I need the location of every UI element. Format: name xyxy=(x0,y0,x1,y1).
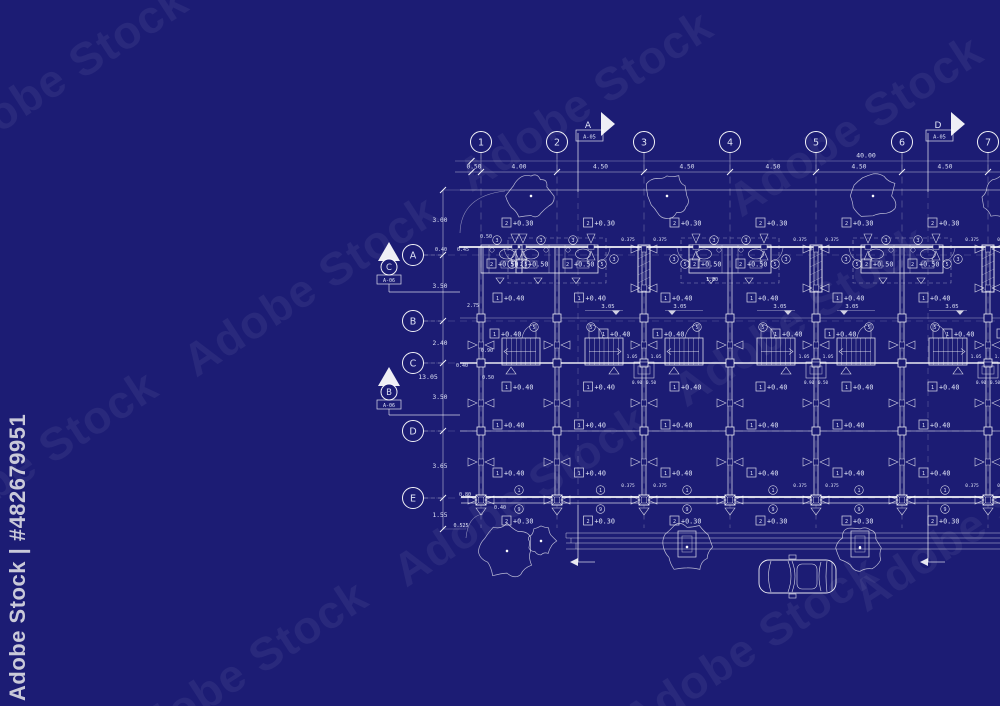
annotation-text: 1 xyxy=(922,471,925,477)
window-symbol xyxy=(975,458,984,466)
small-dim-text: 0.80 xyxy=(459,492,471,498)
elevation-value: +0.30 xyxy=(853,219,873,227)
blueprint-linework xyxy=(479,400,484,406)
blueprint-linework xyxy=(761,245,767,250)
blueprint-linework xyxy=(956,311,964,316)
dim-text: 3.50 xyxy=(433,394,448,401)
annotation-text: 1 xyxy=(577,471,580,477)
annotation-text: 1.05 xyxy=(971,354,982,360)
elevation-value: +0.40 xyxy=(930,469,950,477)
blueprint-linework xyxy=(728,342,733,348)
sink-fixture xyxy=(717,248,721,252)
elevation-value: +0.50 xyxy=(747,260,767,268)
annotation-text: 3 xyxy=(744,238,747,244)
annotation-text: 0.90 xyxy=(976,380,987,385)
blueprint-linework xyxy=(900,400,905,406)
window-symbol xyxy=(992,458,1000,466)
window-symbol xyxy=(561,458,570,466)
annotation-text: 9 xyxy=(599,507,602,513)
annotation-text: 1 xyxy=(586,385,589,391)
tree-center xyxy=(872,195,874,197)
window-symbol xyxy=(648,458,657,466)
window-symbol xyxy=(485,458,494,466)
window-symbol xyxy=(519,234,527,243)
column xyxy=(477,427,485,435)
column xyxy=(640,314,648,322)
window-symbol xyxy=(544,399,553,407)
section-letter: D xyxy=(935,121,942,131)
annotation-text: 3 xyxy=(612,257,615,263)
annotation-text: 9 xyxy=(517,507,520,513)
small-dim-text: 1.80 xyxy=(706,277,718,283)
window-symbol xyxy=(561,341,570,349)
annotation-text: 1 xyxy=(922,296,925,302)
section-letter: B xyxy=(386,388,392,398)
small-dim-text: 0.40 xyxy=(456,363,468,369)
car-mirror xyxy=(789,555,796,559)
column xyxy=(553,314,561,322)
annotation-text: 0.90 xyxy=(804,380,815,385)
annotation-text: 1 xyxy=(857,488,860,494)
blueprint-linework xyxy=(555,497,560,503)
annotation-text: 0.375 xyxy=(653,237,667,243)
grid-bubble-label: D xyxy=(409,427,416,438)
annotation-text: 1 xyxy=(496,471,499,477)
elevation-value: +0.30 xyxy=(595,517,615,525)
elevation-value: +0.40 xyxy=(664,330,684,338)
window-symbol xyxy=(544,341,553,349)
blueprint-linework xyxy=(555,400,560,406)
annotation-text: 5 xyxy=(600,262,603,268)
window-symbol xyxy=(468,458,477,466)
elevation-value: +0.40 xyxy=(954,330,974,338)
blueprint-linework xyxy=(814,342,819,348)
elevation-value: +0.40 xyxy=(836,330,856,338)
column xyxy=(812,314,820,322)
annotation-text: 2 xyxy=(673,519,676,525)
grid-bubble-label: 2 xyxy=(554,138,560,149)
annotation-text: 0.375 xyxy=(965,237,979,243)
annotation-text: 1 xyxy=(771,488,774,494)
annotation-text: 9 xyxy=(943,507,946,513)
annotation-text: 1 xyxy=(750,471,753,477)
elevation-value: +0.40 xyxy=(782,330,802,338)
annotation-text: 9 xyxy=(685,507,688,513)
window-symbol xyxy=(820,458,829,466)
annotation-text: 1 xyxy=(664,471,667,477)
window-symbol xyxy=(889,458,898,466)
blueprint-linework xyxy=(814,497,819,503)
annotation-text: 1 xyxy=(946,332,949,338)
window-symbol xyxy=(587,234,595,243)
car-mirror xyxy=(789,594,796,598)
elevation-value: +0.50 xyxy=(498,260,518,268)
blueprint-linework xyxy=(986,497,991,503)
blueprint-linework xyxy=(460,191,505,233)
elevation-value: +0.40 xyxy=(595,383,615,391)
annotation-text: 1 xyxy=(750,423,753,429)
overall-dim-text: 13.05 xyxy=(418,373,438,381)
annotation-text: 3.05 xyxy=(945,304,958,310)
tree xyxy=(478,523,531,577)
annotation-text: 3 xyxy=(844,257,847,263)
column xyxy=(477,359,485,367)
grid-bubble-label: C xyxy=(410,359,417,370)
column xyxy=(898,427,906,435)
elevation-value: +0.40 xyxy=(758,294,778,302)
grid-bubble-label: B xyxy=(410,317,417,328)
annotation-text: 0.375 xyxy=(793,483,807,489)
annotation-text: 3 xyxy=(712,238,715,244)
annotation-text: 2 xyxy=(759,519,762,525)
elevation-value: +0.40 xyxy=(586,469,606,477)
dim-text: 3.50 xyxy=(433,283,448,290)
blueprint-linework xyxy=(986,246,991,252)
annotation-text: 0.375 xyxy=(793,237,807,243)
dim-text: 4.50 xyxy=(680,164,695,171)
blueprint-linework xyxy=(784,311,792,316)
details xyxy=(468,234,1000,515)
annotations: 2+0.50532+0.50532+0.50532+0.50532+0.5053… xyxy=(409,138,1000,530)
annotation-text: 1.05 xyxy=(823,354,834,360)
tree-center xyxy=(859,547,861,549)
annotation-text: 5 xyxy=(589,325,592,331)
tree xyxy=(836,528,882,571)
window-symbol xyxy=(587,251,595,260)
blueprint-linework xyxy=(682,536,692,552)
window-symbol xyxy=(734,399,743,407)
window-symbol xyxy=(906,399,915,407)
elevation-value: +0.40 xyxy=(853,383,873,391)
symbol-triangle xyxy=(496,278,504,284)
symbol-triangle xyxy=(609,367,619,374)
elevation-value: +0.40 xyxy=(844,469,864,477)
annotation-text: 2 xyxy=(759,221,762,227)
annotation-text: 2 xyxy=(739,262,742,268)
annotation-text: 1 xyxy=(845,385,848,391)
annotation-text: 1 xyxy=(517,488,520,494)
window-symbol xyxy=(631,341,640,349)
elevation-value: +0.30 xyxy=(853,517,873,525)
tree-center xyxy=(540,540,542,542)
blueprint-linework xyxy=(588,245,594,250)
annotation-text: 1 xyxy=(750,296,753,302)
blueprint-linework xyxy=(479,459,484,465)
annotation-text: 2 xyxy=(566,262,569,268)
car-hood-line xyxy=(769,561,772,592)
window-symbol xyxy=(734,458,743,466)
sink-fixture xyxy=(566,248,570,252)
tree-center xyxy=(530,195,532,197)
window-symbol xyxy=(544,458,553,466)
elevation-value: +0.50 xyxy=(574,260,594,268)
annotation-text: 1 xyxy=(943,488,946,494)
elevation-value: +0.50 xyxy=(919,260,939,268)
elevation-value: +0.40 xyxy=(504,421,524,429)
blueprint-linework xyxy=(668,311,676,316)
annotation-text: 5 xyxy=(524,262,527,268)
annotation-text: 3 xyxy=(884,238,887,244)
annotation-text: 5 xyxy=(855,262,858,268)
window-symbol xyxy=(906,341,915,349)
annotation-text: 1 xyxy=(685,488,688,494)
window-symbol xyxy=(932,234,940,243)
section-flag xyxy=(378,367,400,386)
elevation-value: +0.30 xyxy=(681,219,701,227)
window-symbol xyxy=(992,399,1000,407)
car-windshield xyxy=(792,561,795,592)
window-symbol xyxy=(864,251,872,260)
blueprint-linework xyxy=(900,459,905,465)
annotation-text: 9 xyxy=(771,507,774,513)
elevation-value: +0.40 xyxy=(501,330,521,338)
annotation-text: 2 xyxy=(505,221,508,227)
annotation-text: 1 xyxy=(836,423,839,429)
annotation-text: 1 xyxy=(836,296,839,302)
annotation-text: 1 xyxy=(836,471,839,477)
annotation-text: 1 xyxy=(759,385,762,391)
annotation-text: 0.375 xyxy=(825,237,839,243)
column xyxy=(640,427,648,435)
blueprint-linework xyxy=(728,400,733,406)
small-dim-text: 0.40 xyxy=(494,505,506,511)
annotation-text: 0.375 xyxy=(621,483,635,489)
annotation-text: 1 xyxy=(664,423,667,429)
annotation-text: 1.05 xyxy=(799,354,810,360)
dim-text: 4.50 xyxy=(593,164,608,171)
column xyxy=(553,359,561,367)
small-dim-text: 0.40 xyxy=(435,247,447,253)
elevation-value: +0.40 xyxy=(758,421,778,429)
elevation-value: +0.40 xyxy=(844,294,864,302)
annotation-text: 5 xyxy=(945,262,948,268)
dim-text: 4.50 xyxy=(766,164,781,171)
elevation-value: +0.30 xyxy=(939,517,959,525)
annotation-text: 3.05 xyxy=(601,304,614,310)
window-symbol xyxy=(820,341,829,349)
section-sheet: A-05 xyxy=(933,135,946,141)
tree xyxy=(528,526,556,555)
car-body xyxy=(759,560,836,593)
elevation-value: +0.40 xyxy=(681,383,701,391)
elevation-value: +0.40 xyxy=(672,421,692,429)
annotation-text: 2 xyxy=(520,262,523,268)
blueprint-linework xyxy=(466,514,483,538)
car-roof xyxy=(797,564,817,589)
annotation-text: 3 xyxy=(784,257,787,263)
annotation-text: 9 xyxy=(857,507,860,513)
window-symbol xyxy=(906,458,915,466)
window-symbol xyxy=(631,458,640,466)
tree-center xyxy=(666,195,668,197)
annotation-text: 3.05 xyxy=(773,304,786,310)
elevation-value: +0.30 xyxy=(767,219,787,227)
blueprint-linework xyxy=(900,497,905,503)
section-letter: C xyxy=(386,263,392,273)
elevation-value: +0.40 xyxy=(610,330,630,338)
annotation-text: 2 xyxy=(911,262,914,268)
blueprint-linework xyxy=(986,342,991,348)
blueprint-linework xyxy=(814,459,819,465)
annotation-text: 1.05 xyxy=(627,354,638,360)
dim-text: 4.50 xyxy=(938,164,953,171)
elevation-value: +0.40 xyxy=(513,383,533,391)
annotation-text: 5 xyxy=(532,325,535,331)
blueprint-linework xyxy=(642,285,647,291)
annotation-text: 2 xyxy=(673,221,676,227)
dim-text: 2.40 xyxy=(433,340,448,347)
window-symbol xyxy=(717,399,726,407)
blueprint-linework xyxy=(900,342,905,348)
blueprint-linework xyxy=(986,400,991,406)
section-flag xyxy=(378,242,400,261)
blueprint-linework xyxy=(986,285,991,291)
blueprint-linework xyxy=(933,245,939,250)
dim-text: 3.65 xyxy=(433,463,448,470)
grid-bubble-label: E xyxy=(410,494,416,505)
annotation-text: 0.375 xyxy=(825,483,839,489)
car-rear-window xyxy=(819,562,821,591)
window-symbol xyxy=(992,341,1000,349)
annotation-text: 1.05 xyxy=(651,354,662,360)
blueprint-linework xyxy=(693,245,699,250)
annotation-text: 3 xyxy=(495,238,498,244)
blueprint-linework xyxy=(814,246,819,252)
sink-fixture xyxy=(911,248,915,252)
window-symbol xyxy=(803,458,812,466)
window-symbol xyxy=(511,251,519,260)
tree-center xyxy=(506,550,508,552)
dim-text: 1.55 xyxy=(433,512,448,519)
annotation-text: 0.375 xyxy=(965,483,979,489)
window-symbol xyxy=(975,341,984,349)
column xyxy=(726,359,734,367)
annotation-text: 5 xyxy=(761,325,764,331)
window-symbol xyxy=(692,234,700,243)
column xyxy=(984,427,992,435)
annotation-text: 1 xyxy=(505,385,508,391)
annotation-text: 2 xyxy=(693,262,696,268)
blueprint-linework xyxy=(986,459,991,465)
blueprint-linework xyxy=(642,497,647,503)
tree xyxy=(982,175,1000,217)
elevation-value: +0.40 xyxy=(586,294,606,302)
dim-text: 4.50 xyxy=(852,164,867,171)
elevation-value: +0.40 xyxy=(844,421,864,429)
annotation-text: 0.375 xyxy=(653,483,667,489)
section-letter: A xyxy=(585,121,592,131)
overall-dim-text: 40.00 xyxy=(856,152,876,160)
stock-blueprint-image: Adobe StockAdobe StockAdobe StockAdobe S… xyxy=(0,0,1000,706)
small-dim-text: 0.525 xyxy=(453,523,468,529)
symbol-triangle xyxy=(841,367,851,374)
blueprint-linework xyxy=(840,311,848,316)
window-symbol xyxy=(820,399,829,407)
blueprint-linework xyxy=(512,245,518,250)
elevation-value: +0.40 xyxy=(672,469,692,477)
car-trunk-line xyxy=(826,561,827,592)
annotation-text: 3 xyxy=(916,238,919,244)
annotation-text: 1 xyxy=(774,332,777,338)
window-symbol xyxy=(648,399,657,407)
window-symbol xyxy=(864,234,872,243)
annotation-text: 2 xyxy=(586,221,589,227)
window-symbol xyxy=(803,341,812,349)
grid-bubble-label: 7 xyxy=(985,138,991,149)
window-symbol xyxy=(631,399,640,407)
small-dim-text: 2.75 xyxy=(467,303,479,309)
elevation-value: +0.40 xyxy=(504,469,524,477)
annotation-text: 1 xyxy=(664,296,667,302)
elevation-value: +0.40 xyxy=(758,469,778,477)
elevation-value: +0.50 xyxy=(873,260,893,268)
annotation-text: 3 xyxy=(571,238,574,244)
annotation-text: 5 xyxy=(773,262,776,268)
annotation-text: 1.05 xyxy=(995,354,1000,360)
dim-text: 3.00 xyxy=(433,217,448,224)
elevation-value: +0.30 xyxy=(513,219,533,227)
annotation-text: 3 xyxy=(539,238,542,244)
elevation-value: +0.40 xyxy=(939,383,959,391)
blueprint-linework xyxy=(555,342,560,348)
blueprint-linework xyxy=(728,497,733,503)
annotation-text: 5 xyxy=(933,325,936,331)
annotation-text: 0.50 xyxy=(818,380,829,385)
symbol-triangle xyxy=(781,367,791,374)
annotation-text: 1 xyxy=(493,332,496,338)
annotation-text: 0.50 xyxy=(990,380,1000,385)
dim-text: 4.00 xyxy=(512,164,527,171)
blueprint-linework xyxy=(555,459,560,465)
elevation-value: +0.50 xyxy=(528,260,548,268)
elevation-value: +0.30 xyxy=(681,517,701,525)
window-symbol xyxy=(519,251,527,260)
elevation-value: +0.30 xyxy=(595,219,615,227)
annotation-text: 2 xyxy=(845,221,848,227)
elevation-value: +0.40 xyxy=(930,294,950,302)
annotation-text: 2 xyxy=(931,221,934,227)
annotation-text: 1 xyxy=(599,488,602,494)
annotation-text: 3.05 xyxy=(673,304,686,310)
window-symbol xyxy=(717,458,726,466)
annotation-text: 2 xyxy=(586,519,589,525)
column xyxy=(726,427,734,435)
section-arrow xyxy=(570,558,578,566)
grid-bubble-label: A xyxy=(410,251,417,262)
annotation-text: 2 xyxy=(490,262,493,268)
section-sheet: A-05 xyxy=(583,135,596,141)
column xyxy=(553,427,561,435)
elevation-value: +0.50 xyxy=(701,260,721,268)
annotation-text: 0.50 xyxy=(646,380,657,385)
window-symbol xyxy=(760,251,768,260)
column xyxy=(477,314,485,322)
symbol-triangle xyxy=(506,367,516,374)
blueprint-linework xyxy=(642,246,647,252)
annotation-text: 2 xyxy=(505,519,508,525)
annotation-text: 3.05 xyxy=(845,304,858,310)
elevation-value: +0.40 xyxy=(504,294,524,302)
section-sheet: A-06 xyxy=(383,403,395,409)
column xyxy=(898,314,906,322)
blueprint-linework xyxy=(479,497,484,503)
annotation-text: 5 xyxy=(683,262,686,268)
annotation-text: 3 xyxy=(956,257,959,263)
grid-bubble-label: 3 xyxy=(641,138,647,149)
small-dim-text: 0.50 xyxy=(482,375,494,381)
column xyxy=(984,314,992,322)
annotation-text: 1 xyxy=(577,296,580,302)
